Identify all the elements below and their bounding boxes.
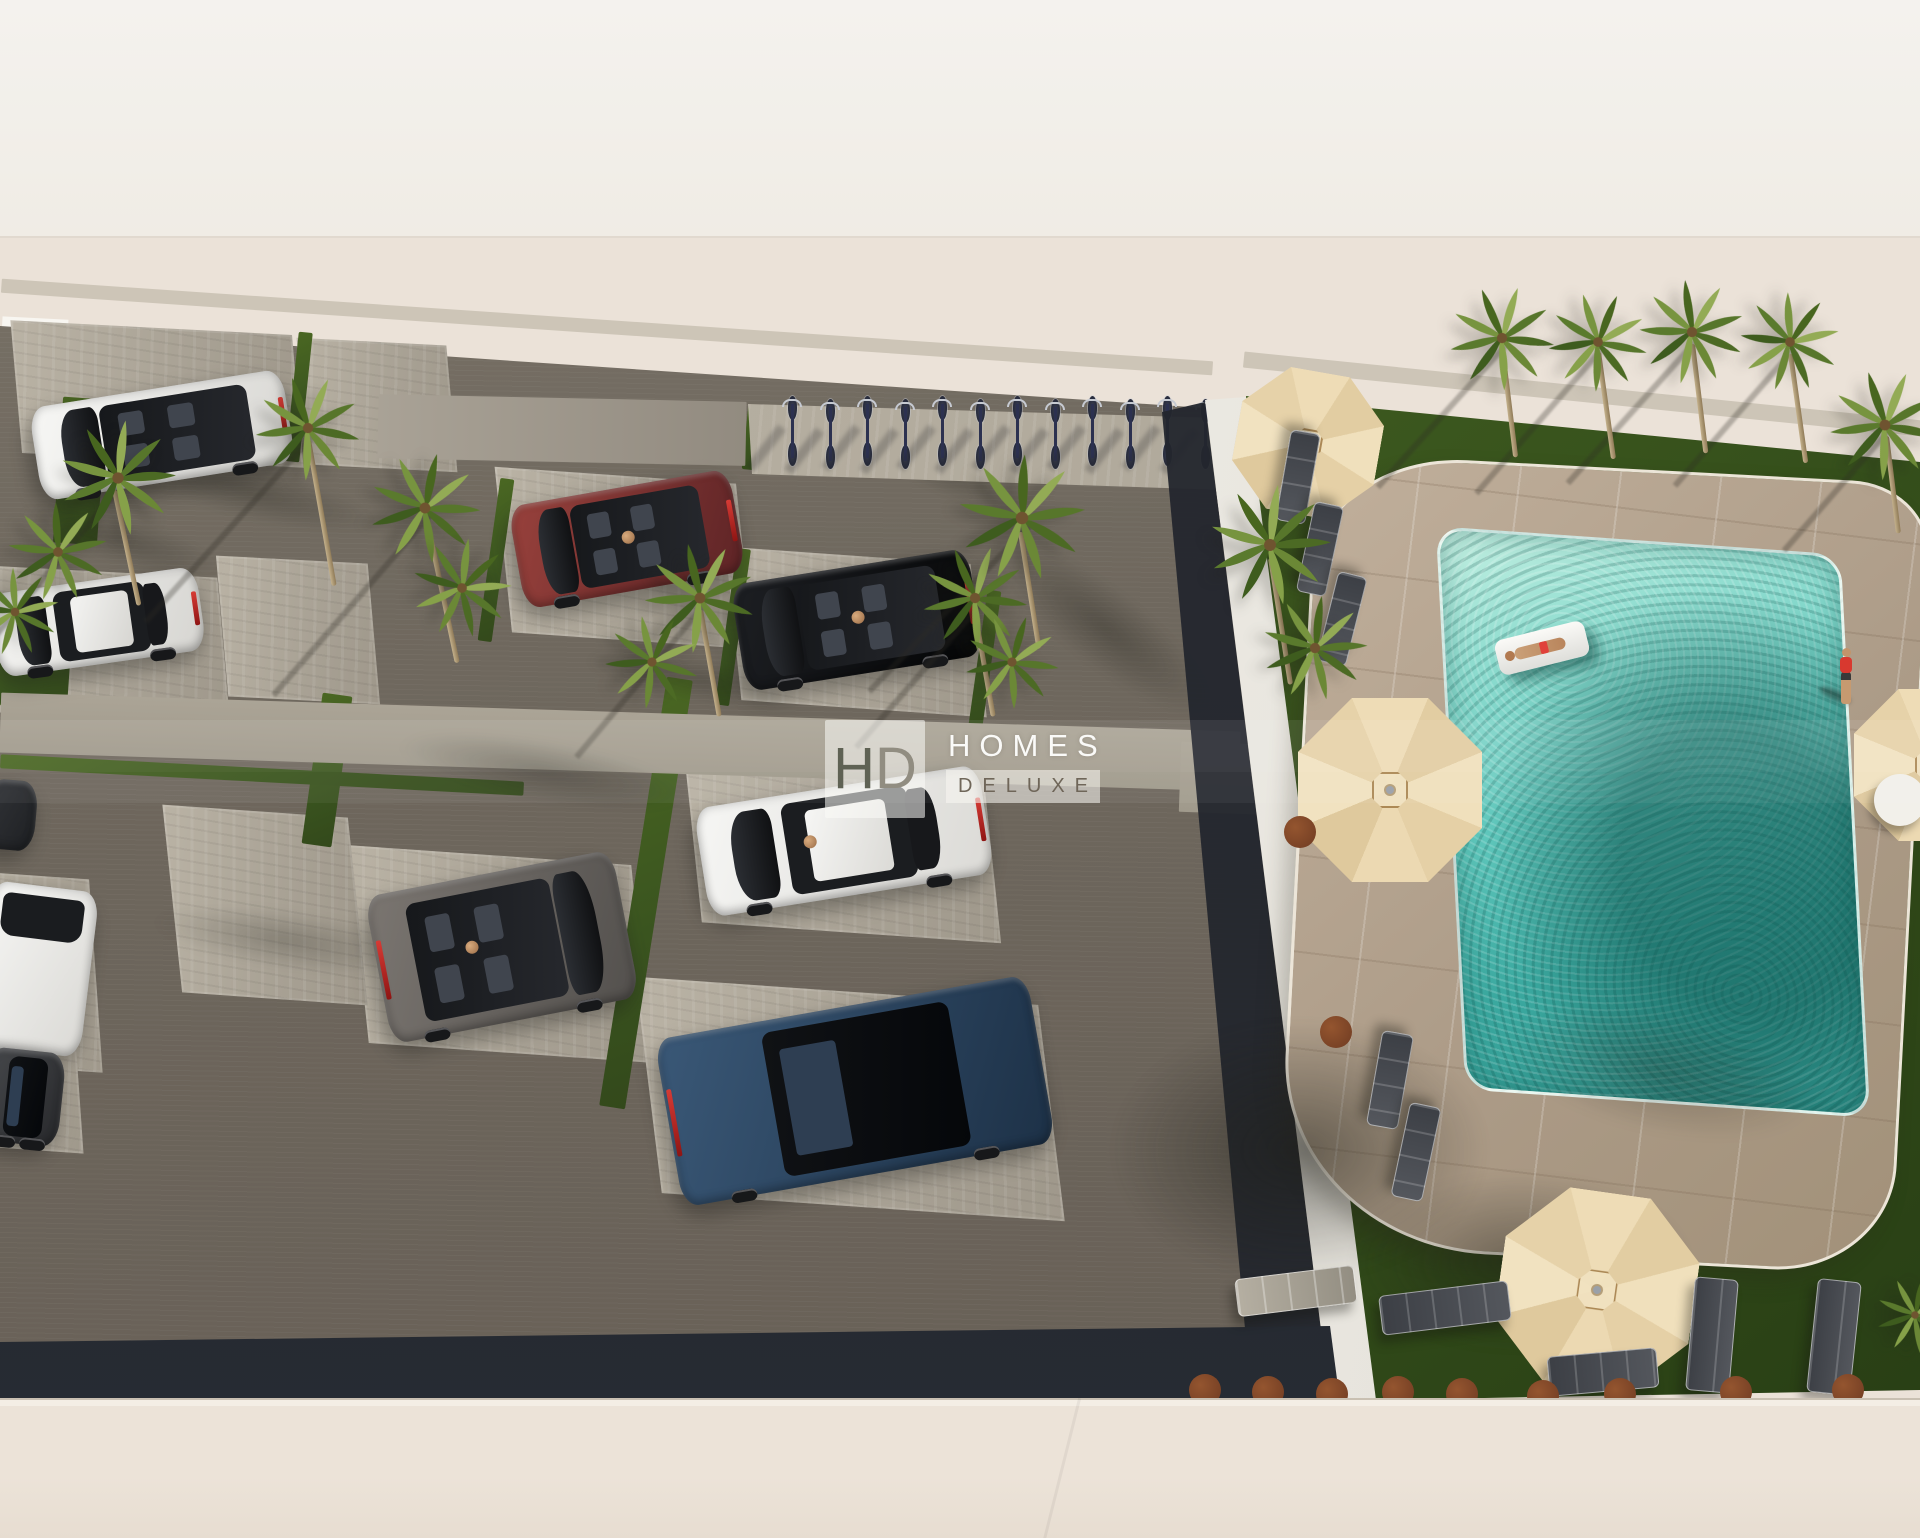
palm-tree [1436,272,1568,404]
watermark-deluxe-text: DELUXE [946,770,1100,803]
watermark-homes-text: HOMES [948,728,1108,764]
palm-tree [1616,256,1767,407]
palm-trunk [1788,354,1808,464]
sky-background [0,0,1920,236]
palm-tree [1523,267,1673,417]
swimming-pool [1436,526,1871,1118]
palm-trunk [1690,344,1708,454]
person-red-top [1840,657,1852,673]
aerial-render: HD HOMES DELUXE [0,0,1920,1538]
watermark-logo-square: HD [825,720,925,818]
person-walking [1834,648,1860,712]
person-legs [1841,672,1851,704]
person-head [1842,648,1851,657]
palm-tree [1721,273,1859,411]
horizon-line [0,236,1920,238]
street-band [0,1398,1920,1538]
watermark-monogram: HD [833,740,917,798]
